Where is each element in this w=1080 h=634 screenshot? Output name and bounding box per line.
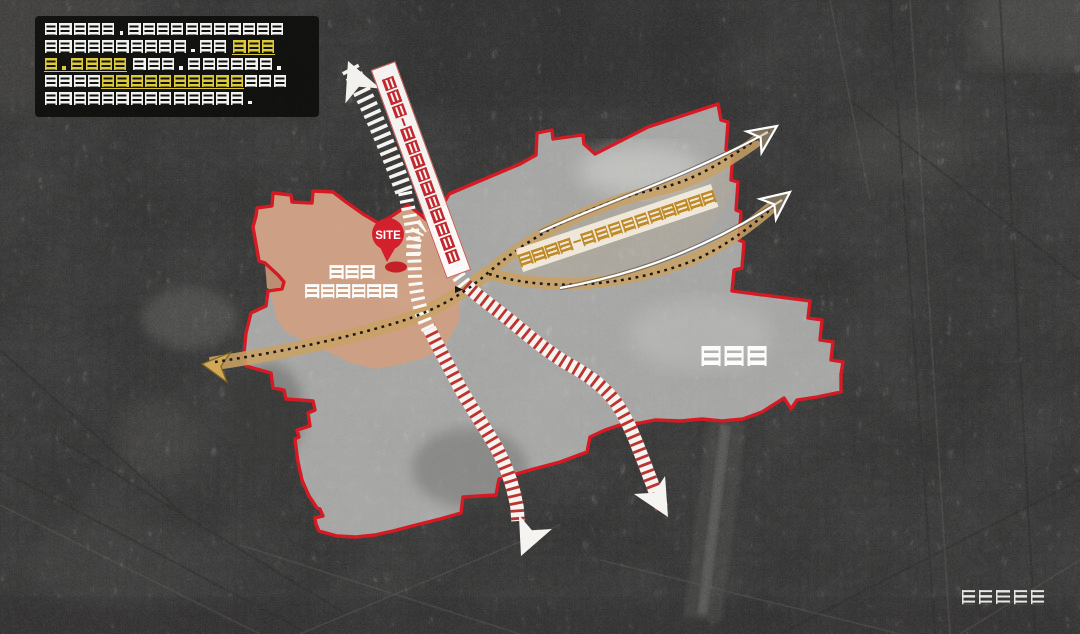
svg-text:SITE: SITE — [375, 230, 401, 242]
